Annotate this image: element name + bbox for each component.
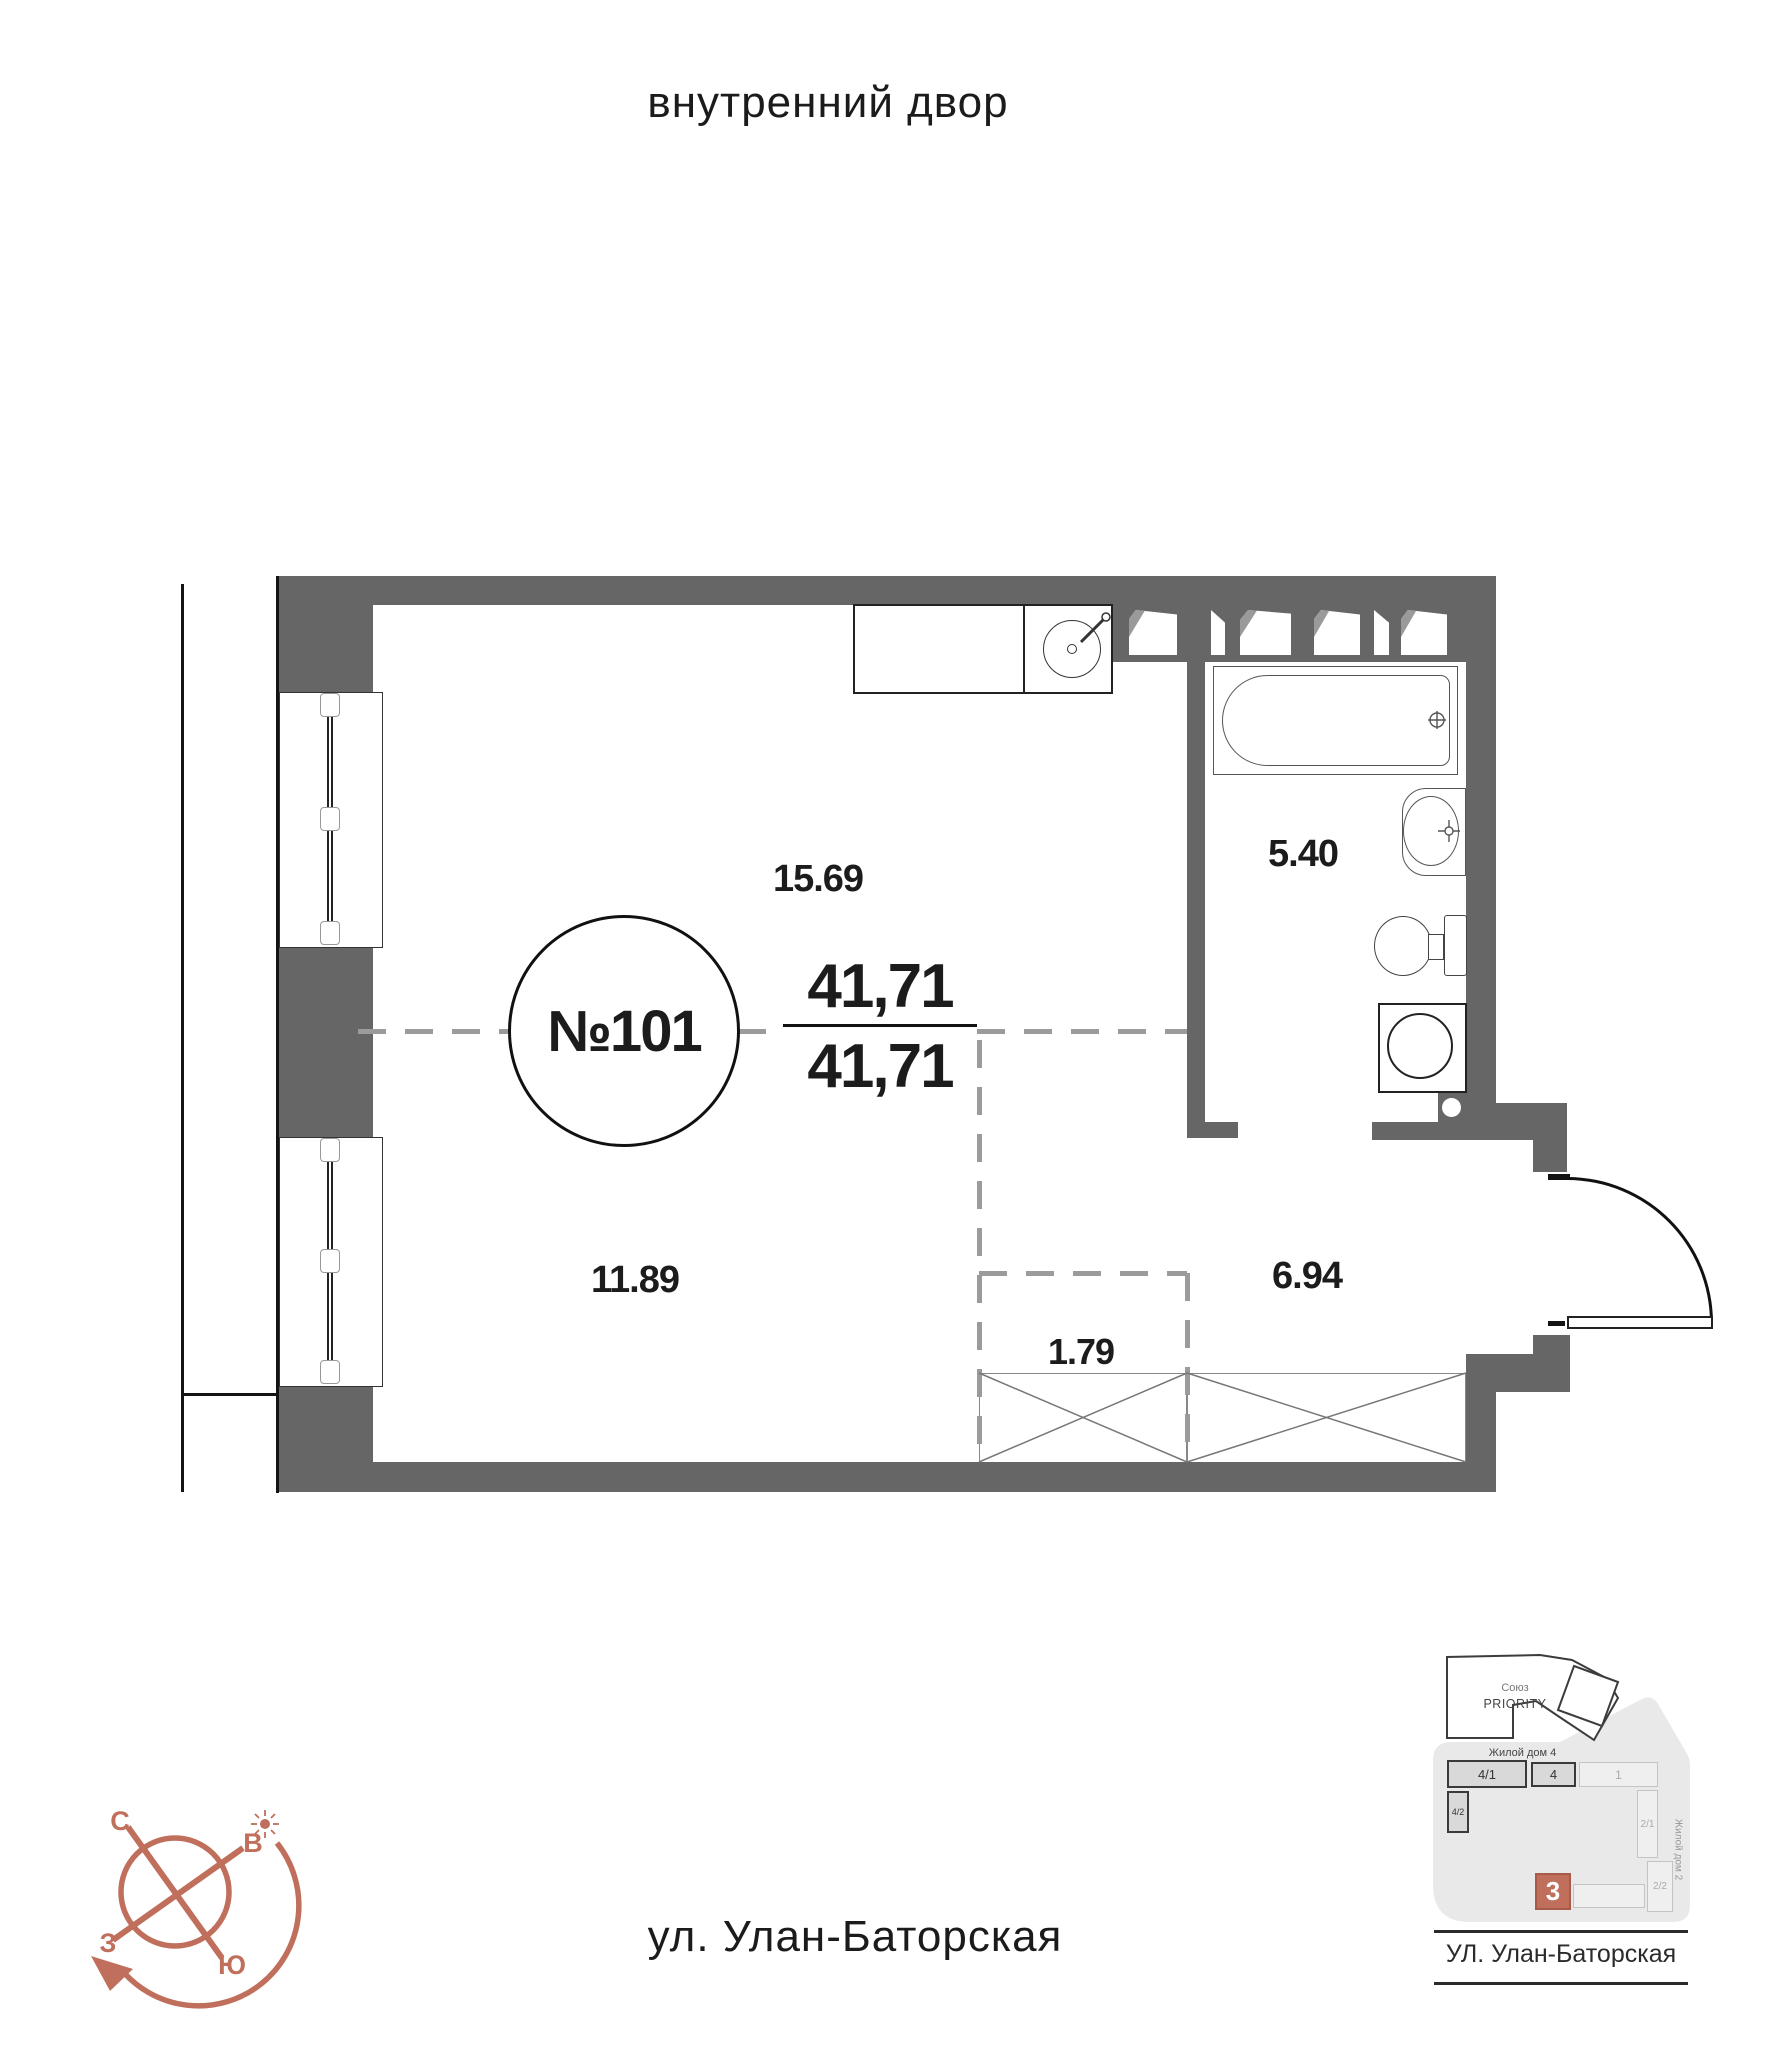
minimap-complex-name-line1: Союз <box>1470 1682 1560 1694</box>
entry-jamb-lower-2 <box>1466 1354 1533 1392</box>
toilet-connector <box>1428 934 1444 960</box>
area-label-room: 11.89 <box>565 1259 705 1302</box>
vent-opening <box>1401 610 1447 655</box>
window-handle-icon <box>320 1360 340 1384</box>
window-pier-left <box>277 948 373 1137</box>
minimap-house2-label: Жилой дом 2 <box>1673 1805 1684 1895</box>
minimap-separator-bottom <box>1434 1982 1688 1985</box>
compass-north-label: С <box>105 1806 135 1837</box>
compass-west-label: З <box>93 1928 123 1959</box>
minimap-house4-label: Жилой дом 4 <box>1470 1747 1575 1759</box>
minimap-building-2-2: 2/2 <box>1647 1861 1673 1912</box>
wardrobe-box <box>1187 1373 1466 1462</box>
door-leaf <box>1567 1316 1713 1329</box>
wall-right <box>1466 576 1496 1140</box>
wall-corner-bottom-left <box>277 1387 373 1462</box>
vent-opening <box>1129 610 1177 655</box>
minimap-street-label: УЛ. Улан-Баторская <box>1433 1940 1689 1969</box>
dimension-dash-line <box>358 1029 508 1034</box>
area-label-wardrobe: 1.79 <box>1011 1331 1151 1373</box>
window-handle-icon <box>320 1138 340 1162</box>
site-boundary-line-vertical <box>181 584 184 1492</box>
floor-drain-icon <box>1442 1098 1461 1117</box>
kitchen-counter-divider <box>1023 606 1025 692</box>
minimap-building-unlabeled <box>1573 1884 1645 1908</box>
window-lower <box>279 1137 383 1387</box>
area-label-hall: 6.94 <box>1237 1255 1377 1298</box>
minimap-building-2-1: 2/1 <box>1637 1790 1658 1858</box>
toilet-tank <box>1444 915 1467 976</box>
courtyard-label: внутренний двор <box>478 78 1178 128</box>
toilet-bowl-icon <box>1374 916 1432 976</box>
total-area-value: 41,71 <box>783 950 977 1024</box>
area-label-bathroom: 5.40 <box>1233 833 1373 876</box>
area-label-kitchen-living: 15.69 <box>748 858 888 901</box>
apartment-number: №101 <box>547 998 700 1065</box>
door-frame-tick-left <box>1548 1321 1565 1326</box>
window-upper <box>279 692 383 948</box>
kitchen-sink-drain-icon <box>1067 644 1077 654</box>
door-swing-arc <box>1567 1177 1713 1323</box>
wall-top <box>277 576 1496 605</box>
washing-machine-drum <box>1387 1013 1453 1079</box>
living-area-value: 41,71 <box>783 1027 977 1107</box>
wall-right-lower <box>1466 1392 1496 1462</box>
minimap-building-4: 4 <box>1531 1762 1576 1787</box>
wall-bottom <box>277 1462 1496 1492</box>
entry-jamb-lower <box>1533 1335 1570 1392</box>
entry-jamb-upper <box>1496 1103 1567 1140</box>
dimension-dash-line <box>979 1271 1187 1276</box>
dimension-dash-line <box>738 1029 783 1034</box>
vent-opening <box>1314 610 1360 655</box>
dimension-dash-line <box>977 1040 982 1462</box>
window-handle-icon <box>320 921 340 945</box>
minimap-building-4-1: 4/1 <box>1447 1760 1527 1788</box>
street-label: ул. Улан-Баторская <box>505 1912 1205 1962</box>
partition-wall-foot <box>1205 1122 1238 1138</box>
window-handle-icon <box>320 807 340 831</box>
dimension-dash-line <box>1185 1273 1190 1462</box>
minimap-building-4-2: 4/2 <box>1447 1791 1469 1833</box>
bathroom-bottom-wall <box>1372 1122 1496 1140</box>
minimap-separator-top <box>1434 1930 1688 1933</box>
window-handle-icon <box>320 1249 340 1273</box>
window-handle-icon <box>320 693 340 717</box>
vent-opening <box>1240 610 1291 655</box>
entry-jamb-upper-2 <box>1533 1140 1567 1172</box>
area-fraction: 41,71 41,71 <box>783 950 977 1107</box>
wall-corner-top-left <box>277 576 373 692</box>
partition-wall-bathroom <box>1187 605 1205 1138</box>
compass-east-label: В <box>238 1828 268 1859</box>
minimap-complex-name-line2: PRIORITY <box>1460 1697 1570 1711</box>
minimap-building-1: 1 <box>1579 1762 1658 1787</box>
washbasin-icon <box>1403 796 1459 866</box>
dimension-dash-line <box>977 1029 1187 1034</box>
floor-plan-page: внутренний двор <box>0 0 1773 2068</box>
site-boundary-line-horizontal <box>181 1393 277 1396</box>
compass-south-label: Ю <box>216 1950 248 1981</box>
minimap-current-building-badge: 3 <box>1535 1873 1571 1910</box>
bathtub-icon <box>1222 675 1450 766</box>
wardrobe-box <box>979 1373 1187 1462</box>
apartment-number-circle: №101 <box>508 915 740 1147</box>
